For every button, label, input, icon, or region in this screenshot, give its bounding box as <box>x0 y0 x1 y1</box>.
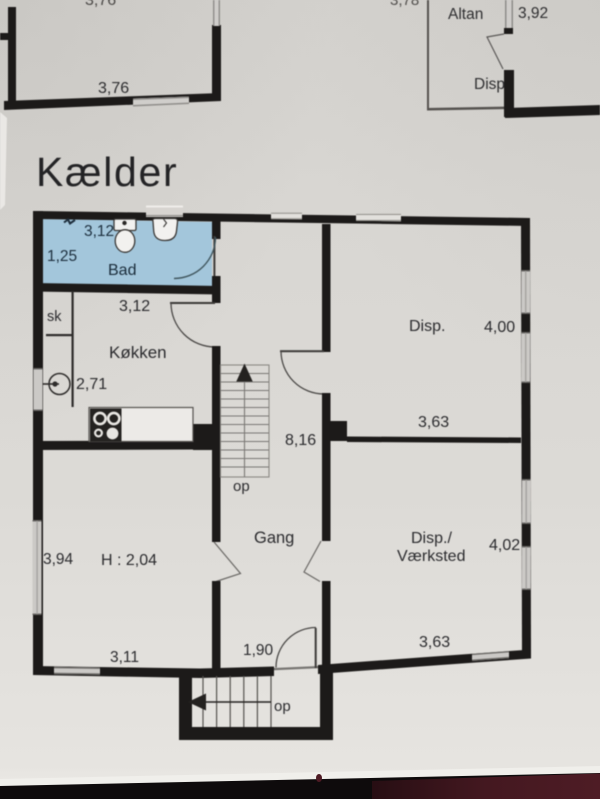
svg-text:op: op <box>233 478 250 495</box>
svg-text:3,12: 3,12 <box>119 298 150 315</box>
svg-text:Altan: Altan <box>448 6 483 23</box>
svg-text:3,76: 3,76 <box>98 80 129 97</box>
svg-text:Disp.: Disp. <box>409 318 445 335</box>
svg-text:H : 2,04: H : 2,04 <box>101 552 157 569</box>
svg-text:3,12: 3,12 <box>84 223 114 240</box>
svg-text:8,16: 8,16 <box>285 432 316 449</box>
svg-text:3,78: 3,78 <box>390 0 419 9</box>
svg-text:3,76: 3,76 <box>85 0 116 9</box>
svg-text:Værksted: Værksted <box>397 548 465 565</box>
svg-text:Bad: Bad <box>108 262 136 279</box>
svg-text:3,92: 3,92 <box>518 5 548 22</box>
svg-text:Køkken: Køkken <box>109 343 167 362</box>
svg-text:op: op <box>274 698 291 715</box>
svg-text:3,63: 3,63 <box>418 414 449 431</box>
svg-text:2,71: 2,71 <box>76 376 107 393</box>
svg-text:3,11: 3,11 <box>110 649 139 666</box>
svg-text:Disp: Disp <box>474 76 505 93</box>
svg-text:sk: sk <box>47 309 62 325</box>
svg-text:Disp./: Disp./ <box>411 530 452 547</box>
svg-text:4,02: 4,02 <box>489 537 520 554</box>
svg-text:4,00: 4,00 <box>484 319 515 336</box>
svg-text:1,25: 1,25 <box>47 248 77 265</box>
svg-text:1,90: 1,90 <box>243 642 274 659</box>
svg-text:Gang: Gang <box>254 529 294 547</box>
svg-text:3,63: 3,63 <box>419 634 450 651</box>
svg-text:3,94: 3,94 <box>43 551 74 568</box>
svg-text:Kælder: Kælder <box>36 149 178 195</box>
